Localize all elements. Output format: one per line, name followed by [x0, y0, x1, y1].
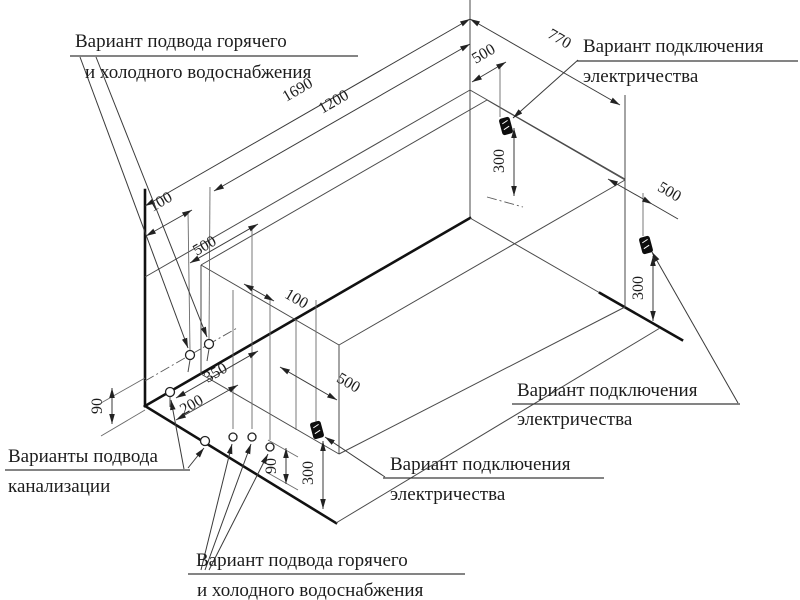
water-point-icon: [229, 433, 237, 441]
label-water-supply-bottom: Вариант подвода горячего и холодного вод…: [188, 550, 465, 600]
installation-diagram: 1690 1200 770 100 500 100 350 200: [0, 0, 800, 600]
dim-back-300: 300: [491, 128, 514, 196]
dim-text-1200: 1200: [316, 87, 352, 118]
svg-text:100: 100: [282, 286, 311, 313]
svg-text:300: 300: [491, 149, 508, 173]
svg-text:500: 500: [334, 370, 363, 397]
label-electric-bottom: Вариант подключения электричества: [383, 454, 604, 505]
water-point-icon: [266, 443, 274, 451]
sewer-point-icon: [166, 388, 175, 408]
dim-floor-200: 200: [176, 385, 238, 420]
svg-text:и холодного водоснабжения: и холодного водоснабжения: [85, 62, 312, 83]
text-labels: Вариант подвода горячего и холодного вод…: [5, 31, 798, 600]
svg-text:канализации: канализации: [8, 476, 110, 497]
svg-text:Варианты подвода: Варианты подвода: [8, 446, 158, 467]
diagram-canvas: 1690 1200 770 100 500 100 350 200: [0, 0, 800, 600]
electrical-outlet-icon: [499, 117, 513, 135]
svg-text:300: 300: [630, 276, 647, 300]
water-point-icon: [186, 351, 195, 373]
dim-height-90-bottom: 90: [263, 448, 286, 484]
label-water-supply-top: Вариант подвода горячего и холодного вод…: [70, 31, 358, 83]
right-wall-floor-junction: [470, 218, 600, 293]
dim-height-90-left: 90: [89, 388, 112, 424]
svg-text:100: 100: [146, 189, 175, 216]
svg-text:90: 90: [89, 398, 106, 414]
dim-back-500: 500: [469, 41, 506, 82]
sewer-point-icon: [201, 437, 210, 446]
water-point-icon: [205, 340, 214, 362]
dim-floor-500: 500: [280, 367, 363, 400]
dim-offset-100-top: 100: [146, 189, 192, 236]
electrical-outlet-icon: [310, 421, 324, 439]
svg-text:электричества: электричества: [583, 66, 699, 87]
svg-text:Вариант подвода горячего: Вариант подвода горячего: [196, 550, 408, 571]
dim-right-500: 500: [608, 179, 684, 219]
dim-text-770: 770: [545, 26, 574, 53]
dim-width-770: 770: [470, 19, 620, 105]
tub-rim-back-left-edge: [201, 100, 487, 265]
svg-text:электричества: электричества: [390, 484, 506, 505]
svg-text:90: 90: [263, 458, 280, 474]
svg-text:350: 350: [201, 360, 230, 387]
svg-text:500: 500: [469, 41, 498, 68]
svg-text:Вариант подключения: Вариант подключения: [390, 454, 571, 475]
svg-text:200: 200: [177, 392, 206, 419]
label-electric-top: Вариант подключения электричества: [577, 36, 798, 87]
electrical-outlet-icon: [639, 236, 653, 254]
svg-text:500: 500: [655, 179, 684, 206]
svg-text:Вариант подключения: Вариант подключения: [517, 380, 698, 401]
dim-offset-100-mid: 100: [244, 284, 311, 312]
dim-wall-500: 500: [190, 224, 258, 263]
water-point-icon: [248, 433, 256, 441]
label-sewer: Варианты подвода канализации: [5, 446, 190, 497]
svg-text:электричества: электричества: [517, 409, 633, 430]
rim-level-centerline: [487, 197, 523, 207]
dim-height-300-bottom: 300: [300, 441, 323, 509]
svg-text:300: 300: [300, 461, 317, 485]
label-electric-right: Вариант подключения электричества: [512, 380, 740, 430]
svg-text:и холодного водоснабжения: и холодного водоснабжения: [197, 580, 424, 600]
tub-rim-front-right-edge: [339, 180, 625, 345]
svg-text:Вариант подвода горячего: Вариант подвода горячего: [75, 31, 287, 52]
svg-text:Вариант подключения: Вариант подключения: [583, 36, 764, 57]
